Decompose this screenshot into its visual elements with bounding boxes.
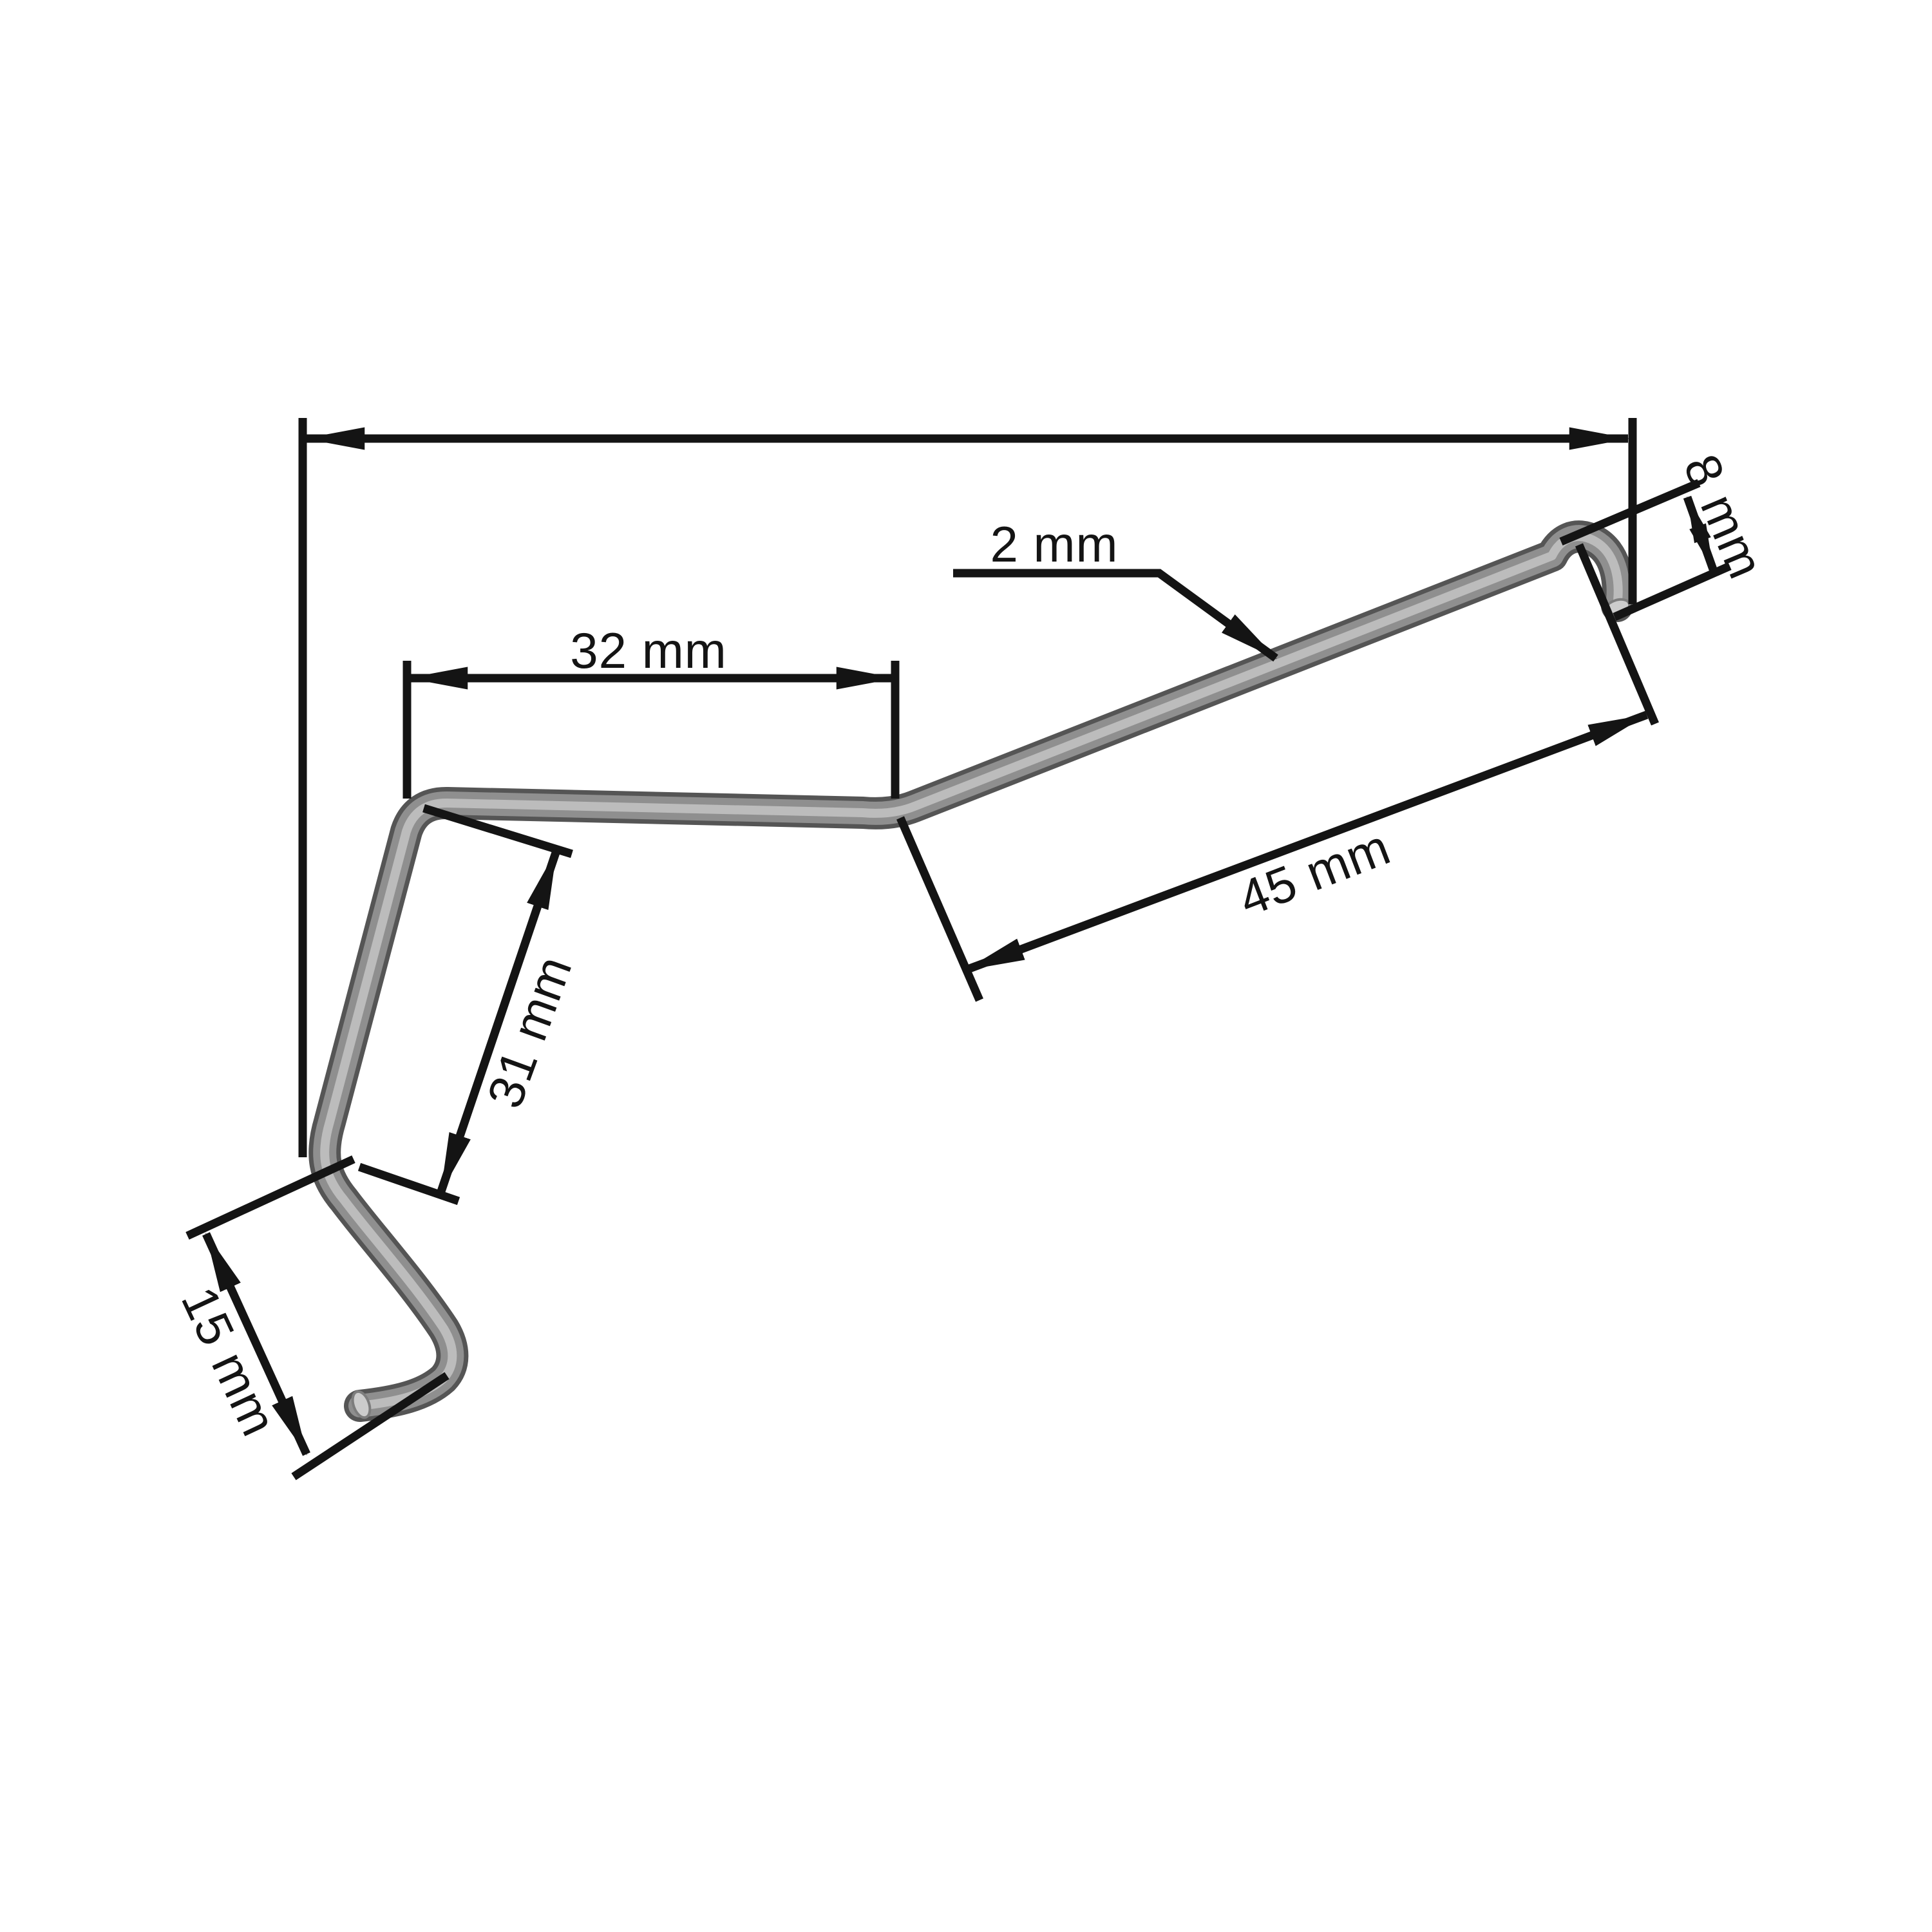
leader-2mm [953,573,1276,658]
label-top-segment: 32 mm [570,625,726,676]
technical-drawing [0,0,1932,1932]
drawing-canvas: 2 mm 32 mm 45 mm 31 mm 15 mm 8 mm [0,0,1932,1932]
label-wire-diameter: 2 mm [990,519,1119,569]
leader-line [953,573,1276,658]
dimension-32mm [407,661,895,799]
